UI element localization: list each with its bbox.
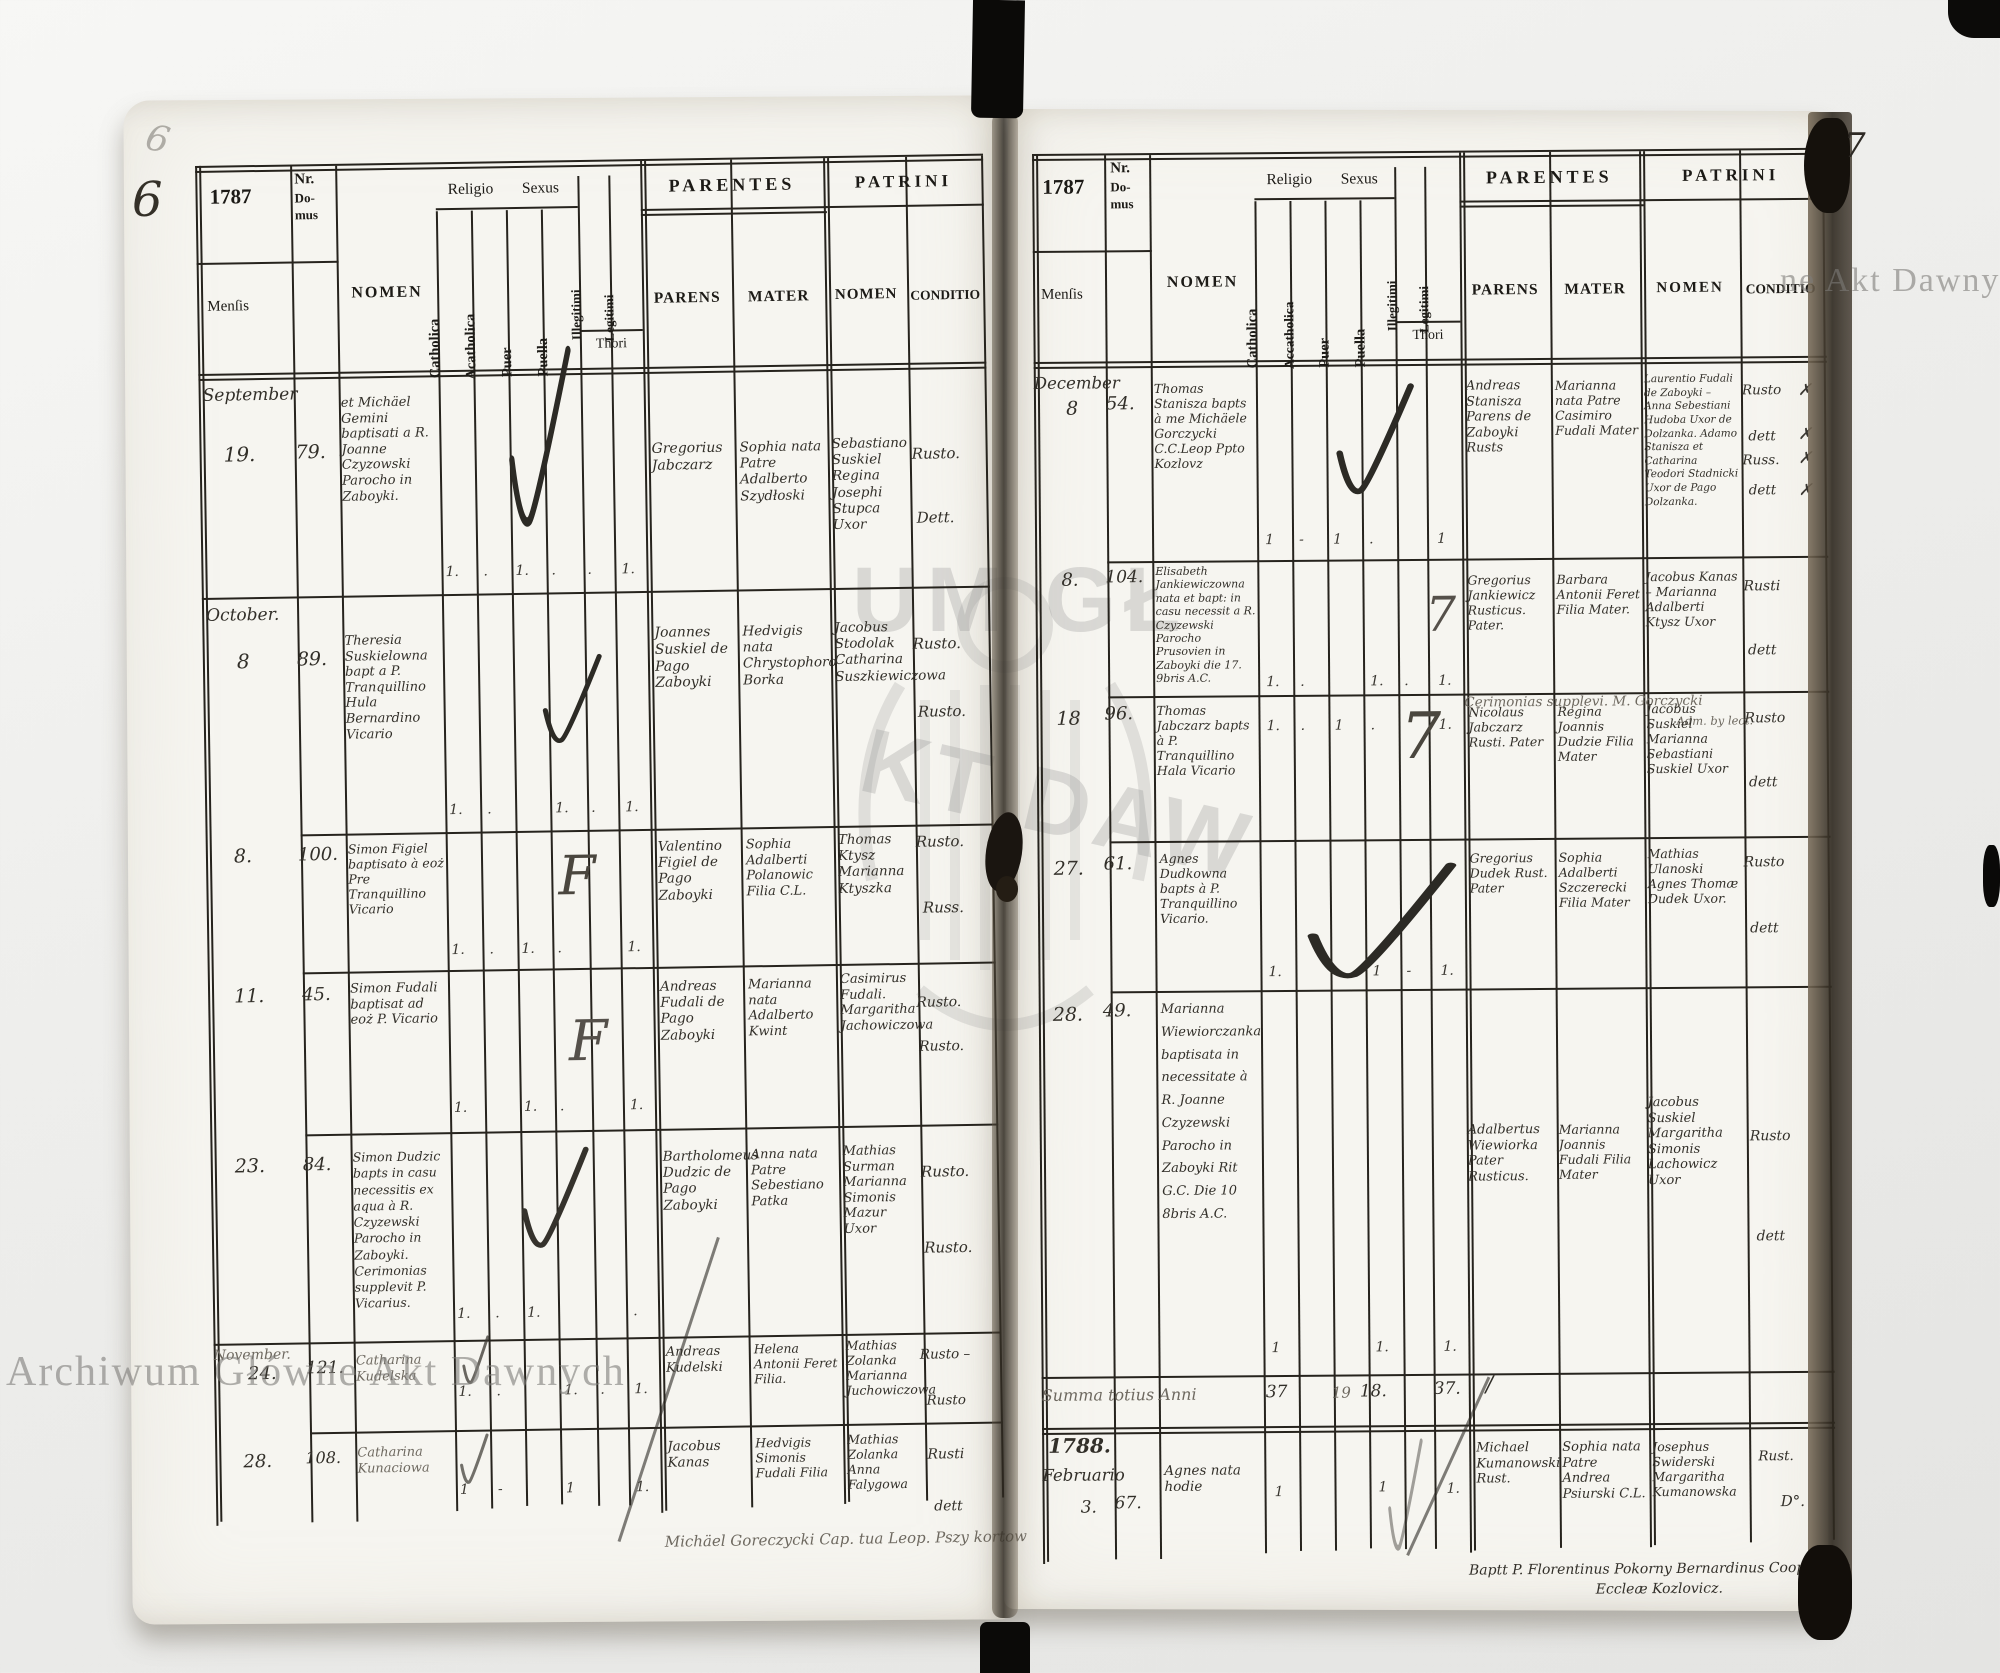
- entry-number: 79.: [295, 441, 326, 464]
- decorative-element: .: [1369, 531, 1374, 547]
- parens-label: PARENS: [1460, 282, 1550, 299]
- puer-label: Puer: [1317, 338, 1334, 368]
- entry-patrini: Sebastiano Suskiel Regina Josephi Stupca…: [831, 435, 909, 533]
- decorative-element: 1: [566, 1480, 575, 1496]
- entry-nomen: Simon Figiel baptisato à eoż Pre Tranqui…: [348, 840, 446, 917]
- entry-nomen: Simon Dudzic bapts in casu necessitis ex…: [353, 1148, 454, 1312]
- entry-nomen: Catharina Kunaciowa: [357, 1444, 452, 1477]
- entry-parens: Gregorius Dudek Rust. Pater: [1470, 850, 1554, 896]
- decorative-element: .: [1370, 717, 1375, 733]
- summa-catholica: 37: [1266, 1382, 1288, 1403]
- table-rule: [730, 160, 753, 1508]
- religio-label: Religio: [1252, 172, 1326, 189]
- patrini-nomen-label: NOMEN: [825, 287, 907, 304]
- decorative-element: 1.: [627, 939, 641, 955]
- spine-ink-blob: [996, 876, 1018, 902]
- check-mark: [1291, 857, 1474, 994]
- decorative-element: .: [1300, 674, 1305, 690]
- entry-day: 28.: [243, 1451, 272, 1473]
- decorative-element: 1.: [1266, 674, 1279, 690]
- decorative-element: 1.: [1370, 673, 1383, 689]
- year-label: 1787: [209, 185, 251, 208]
- entry-month: October.: [206, 605, 279, 627]
- entry-mater: Sophia nata Patre Andrea Psiurski C.L.: [1562, 1439, 1648, 1502]
- entry-patrini: Josephus Swiderski Margaritha Kumanowska: [1652, 1438, 1744, 1499]
- patrini-label: PATRINI: [1639, 166, 1822, 185]
- decorative-element: Rusto: [926, 1392, 966, 1409]
- conditio-label: CONDITIO: [905, 288, 985, 303]
- entry-conditio: Rusto: [1742, 382, 1781, 398]
- table-rule: [1639, 198, 1825, 201]
- decorative-element: .: [560, 1098, 565, 1114]
- entry-day: 28.: [1053, 1004, 1083, 1027]
- entry-parens: Andreas Fudali de Pago Zaboyki: [660, 977, 745, 1043]
- parens-label: PARENS: [642, 290, 732, 308]
- decorative-element: Do-: [1110, 180, 1130, 194]
- decorative-element: dett: [1749, 774, 1778, 791]
- right-register-table: 1787 Nr. Do- mus Menſis NOMEN Religio Se…: [1032, 142, 1838, 1593]
- stroke-path: [544, 656, 600, 741]
- decorative-element: 1.: [527, 1305, 541, 1321]
- entry-patrini: Mathias Ulanoski Agnes Thomæ Dudek Uxor.: [1648, 845, 1743, 906]
- thori-label: Thori: [580, 337, 643, 353]
- entry-patrini: Mathias Zolanka Marianna Juchowiczowa: [846, 1337, 923, 1398]
- decorative-element: 1.: [1375, 1339, 1388, 1355]
- entry-mater: Anna nata Patre Sebestiano Patka: [751, 1146, 838, 1210]
- decorative-element: 1.: [555, 800, 569, 816]
- decorative-element: 1: [1437, 531, 1446, 547]
- sexus-label: Sexus: [1320, 171, 1398, 188]
- decorative-element: -: [498, 1481, 503, 1497]
- entry-month: December: [1034, 373, 1120, 393]
- table-rule: [1033, 250, 1152, 253]
- entry-conditio: Rusto.: [921, 1162, 969, 1181]
- table-rule: [305, 1124, 998, 1137]
- entry-number: 67.: [1115, 1493, 1142, 1514]
- entry-day: 8.: [1061, 570, 1078, 592]
- decorative-element: 1.: [1443, 1339, 1456, 1355]
- entry-day: 23.: [235, 1155, 266, 1178]
- patrini-label: PATRINI: [823, 172, 983, 192]
- decorative-element: dett: [1749, 482, 1777, 498]
- table-rule: [471, 211, 493, 1509]
- entry-mater: Hedvigis Simonis Fudali Filia: [755, 1434, 842, 1480]
- entry-number: 61.: [1104, 853, 1133, 875]
- stroke-path: [510, 350, 570, 522]
- entry-conditio: Rusto: [1744, 710, 1785, 727]
- thori-mark: 7: [1425, 587, 1456, 645]
- entry-month: September: [203, 384, 298, 406]
- entry-day: 3.: [1081, 1498, 1097, 1519]
- puella-label: Puella: [1352, 329, 1369, 368]
- entry-day: 11.: [234, 985, 265, 1008]
- entry-conditio: Rusto: [1744, 854, 1785, 871]
- mark-catholica: 1.: [445, 564, 459, 580]
- table-rule: [640, 161, 663, 1513]
- entry-patrini: Jacobus Stodolak Catharina Suszkiewiczow…: [834, 619, 911, 685]
- entry-mater: Sophia Adalberti Szczerecki Filia Mater: [1559, 849, 1643, 910]
- thori-F-mark: F: [558, 844, 596, 909]
- decorative-element: 1.: [625, 799, 639, 815]
- decorative-element: 1: [1271, 1340, 1280, 1356]
- entry-parens: Gregorius Jankiewicz Rusticus. Pater.: [1467, 572, 1551, 633]
- entry-conditio: Rusto: [1750, 1128, 1791, 1145]
- nomen-label: NOMEN: [337, 284, 437, 302]
- entry-patrini: Laurentio Fudali de Zaboyki – Anna Sebes…: [1644, 372, 1740, 509]
- table-rule: [644, 161, 667, 1511]
- decorative-element: dett: [934, 1498, 963, 1515]
- decorative-element: .: [587, 562, 592, 578]
- entry-conditio: Rusti: [1743, 578, 1780, 595]
- entry-day: 8: [1066, 398, 1078, 421]
- legitimi-label: Legitimi: [1416, 286, 1432, 333]
- summa-legitimi: 37.: [1434, 1379, 1461, 1400]
- decorative-element: 1.: [634, 1381, 648, 1397]
- entry-conditio: Rusto.: [912, 444, 960, 463]
- decorative-element: 1.: [630, 1097, 644, 1113]
- entry-nomen: Theresia Suskielowna bapt a P. Tranquill…: [344, 632, 443, 743]
- entry-parens: Jacobus Kanas: [667, 1437, 751, 1471]
- summa-puer: 19: [1332, 1384, 1351, 1402]
- decorative-element: 1.: [621, 561, 635, 577]
- entry-patrini: Mathias Zolanka Anna Falygowa: [847, 1431, 924, 1492]
- stroke-path: [1339, 386, 1411, 491]
- entry-patrini: Jacobus Suskiel Margaritha Simonis Lacho…: [1647, 1094, 1744, 1188]
- illegitimi-label: Illegitimi: [1384, 281, 1400, 332]
- acatholica-label: Accatholica: [1281, 301, 1298, 369]
- decorative-element: .: [489, 941, 494, 957]
- decorative-element: 1.: [521, 941, 535, 957]
- entry-number: 100.: [298, 844, 338, 866]
- year-1788: 1788.: [1048, 1433, 1111, 1457]
- entry-number: 54.: [1106, 393, 1135, 415]
- mater-label: MATER: [732, 288, 825, 306]
- nr-domus-label: Nr.: [294, 172, 314, 188]
- thori-label: Thori: [1395, 329, 1460, 344]
- decorative-element: Rusto.: [919, 1038, 964, 1056]
- thori-mark: 7: [1400, 699, 1441, 776]
- entry-patrini: Mathias Surman Marianna Simonis Mazur Ux…: [843, 1143, 920, 1238]
- entry-parens: Bartholomeus Dudzic de Pago Zaboyki: [663, 1147, 748, 1213]
- entry-nomen: Thomas Stanisza bapts à me Michäele Gorc…: [1154, 380, 1255, 471]
- entry-mater: Marianna Joannis Fudali Filia Mater: [1559, 1121, 1643, 1182]
- decorative-element: Do-: [295, 191, 315, 205]
- decorative-element: dett: [1757, 1228, 1786, 1245]
- check-mark: [457, 1432, 492, 1491]
- decorative-element: .: [557, 940, 562, 956]
- decorative-element: mus: [1110, 197, 1133, 211]
- archive-watermark-right: ne Akt Dawnych: [1780, 262, 2000, 300]
- entry-number: 84.: [303, 1154, 332, 1176]
- spine-tape-bottom: [980, 1622, 1030, 1673]
- parentes-label: PARENTES: [640, 174, 823, 196]
- thori-F-mark: F: [568, 1008, 608, 1076]
- entry-patrini: Thomas Ktysz Marianna Ktyszka: [838, 831, 915, 897]
- check-mark: [513, 1142, 597, 1261]
- decorative-element: .: [633, 1303, 638, 1319]
- decorative-element: Rusto.: [924, 1238, 972, 1257]
- legitimi-label: Legitimi: [601, 294, 618, 341]
- decorative-element: dett: [1748, 428, 1776, 444]
- mensis-label: Menſis: [1041, 288, 1083, 304]
- catholica-label: Catholica: [427, 319, 445, 379]
- decorative-element: 1: [1333, 532, 1342, 548]
- decorative-element: .: [483, 563, 488, 579]
- entry-patrini: Jacobus Kanas – Marianna Adalberti Ktysz…: [1645, 568, 1740, 629]
- entry-mater: Hedvigis nata Chrystophoro Borka: [742, 622, 829, 688]
- entry-number: 104.: [1105, 567, 1143, 588]
- entry-parens: Andreas Stanisza Parens de Zaboyki Rusts: [1466, 378, 1551, 457]
- entry-nomen: Elisabeth Jankiewiczowna nata et bapt: i…: [1155, 564, 1257, 685]
- entry-mater: Regina Joannis Dudzie Filia Mater: [1557, 703, 1641, 764]
- decorative-element: 1.: [524, 1099, 538, 1115]
- decorative-element: Dett.: [917, 508, 955, 527]
- decorative-element: 1.: [515, 563, 529, 579]
- table-rule: [197, 261, 339, 265]
- entry-day: 18: [1056, 708, 1080, 731]
- entry-nomen: Marianna Wiewiorczanka baptisata in nece…: [1161, 998, 1258, 1226]
- table-rule: [641, 206, 827, 211]
- nr-domus-label: Nr.: [1110, 161, 1130, 177]
- illegitimi-label: Illegitimi: [568, 289, 585, 340]
- entry-number: 49.: [1103, 1000, 1132, 1022]
- decorative-element: 1.: [457, 1306, 471, 1322]
- entry-conditio: Rusto –: [920, 1346, 971, 1363]
- entry-nomen: Agnes nata hodie: [1164, 1462, 1259, 1495]
- entry-day: 27.: [1054, 858, 1084, 881]
- archive-watermark-bottom: Archiwum Główne Akt Dawnych: [6, 1348, 626, 1396]
- entry-parens: Andreas Kudelski: [666, 1343, 750, 1376]
- decorative-element: .: [1404, 673, 1409, 689]
- entry-parens: Joannes Suskiel de Pago Zaboyki: [654, 624, 739, 692]
- decorative-element: 1.: [1446, 1481, 1459, 1497]
- decorative-element: 1.: [1268, 964, 1281, 980]
- table-rule: [577, 176, 600, 1506]
- decorative-element: Rusto.: [918, 702, 966, 721]
- decorative-element: 1: [1275, 1484, 1284, 1500]
- entry-conditio: Rusto.: [913, 634, 961, 653]
- decorative-element: .: [591, 800, 596, 816]
- religio-label: Religio: [433, 181, 507, 198]
- entry-mater: Sophia nata Patre Adalberto Szydłoski: [739, 438, 826, 504]
- decorative-element: 1.: [454, 1100, 468, 1116]
- page-edge-dark-band: [1808, 112, 1852, 1612]
- corner-black-mark: [1948, 0, 2000, 38]
- entry-patrini: Jacobus Suskiel Marianna Sebastiani Susk…: [1646, 700, 1742, 776]
- entry-mater: Sophia Adalberti Polanowic Filia C.L.: [746, 836, 833, 900]
- catholica-label: Catholica: [1244, 309, 1261, 369]
- decorative-element: 1.: [449, 802, 463, 818]
- entry-parens: Michael Kumanowski Rust.: [1476, 1440, 1562, 1487]
- mater-label: MATER: [1550, 281, 1640, 298]
- entry-number: 108.: [305, 1448, 341, 1468]
- entry-day: 8.: [234, 845, 252, 868]
- decorative-element: mus: [295, 208, 318, 222]
- decorative-element: dett: [1750, 920, 1779, 937]
- entry-number: 45.: [302, 984, 331, 1006]
- patrini-nomen-label: NOMEN: [1640, 280, 1740, 297]
- entry-number: 96.: [1104, 703, 1133, 725]
- decorative-element: 1: [1334, 718, 1343, 734]
- diagonal-stroke: [618, 1237, 720, 1542]
- check-mark: [536, 650, 610, 755]
- parentes-label: PARENTES: [1459, 167, 1639, 187]
- table-rule: [824, 204, 984, 209]
- table-rule: [905, 157, 928, 1501]
- entry-number: 89.: [297, 648, 328, 671]
- entry-mater: Helena Antonii Feret Filia.: [754, 1340, 841, 1386]
- entry-mater: Marianna nata Adalberto Kwint: [748, 976, 835, 1040]
- stroke-path: [1312, 865, 1451, 976]
- table-rule: [827, 158, 850, 1502]
- entry-nomen: Thomas Jabczarz bapts à P. Tranquillino …: [1156, 702, 1258, 778]
- entry-parens: Valentino Figiel de Pago Zaboyki: [658, 837, 743, 903]
- decorative-element: .: [1300, 718, 1305, 734]
- acatholica-label: Acatholica: [462, 314, 480, 380]
- entry-conditio: Rusti: [927, 1446, 964, 1463]
- stroke-path: [461, 1435, 488, 1482]
- decorative-element: 1: [1265, 532, 1274, 548]
- sexus-label: Sexus: [501, 180, 579, 197]
- summa-puella: 18.: [1360, 1381, 1387, 1402]
- entry-parens: Gregorius Jabczarz: [651, 440, 736, 475]
- entry-parens: Adalbertus Wiewiorka Pater Rusticus.: [1468, 1122, 1554, 1185]
- entry-day: 19.: [223, 442, 255, 466]
- table-rule: [608, 175, 631, 1505]
- decorative-element: Russ.: [923, 898, 964, 917]
- decorative-element: Russ.: [1742, 452, 1779, 468]
- entry-conditio: Rusto.: [916, 832, 964, 851]
- entry-mater: Marianna nata Patre Casimiro Fudali Mate…: [1555, 377, 1639, 438]
- decorative-element: 1.: [1266, 718, 1279, 734]
- entry-parens: Nicolaus Jabczarz Rusti. Pater: [1468, 704, 1552, 750]
- entry-conditio: Rust.: [1758, 1448, 1794, 1464]
- stroke-path: [523, 1149, 587, 1245]
- entry-month: Februario: [1042, 1465, 1124, 1485]
- decorative-element: D°.: [1781, 1492, 1805, 1510]
- nomen-label: NOMEN: [1150, 274, 1255, 292]
- decorative-element: .: [551, 562, 556, 578]
- folio-number-left: 6: [132, 172, 163, 230]
- entry-day: 8: [237, 649, 250, 673]
- folio-number-right: 7: [1844, 126, 1866, 167]
- entry-patrini: Casimirus Fudali. Margaritha Jachowiczow…: [840, 971, 917, 1035]
- decorative-element: 1.: [636, 1479, 650, 1495]
- check-mark: [1384, 1433, 1427, 1565]
- entry-mater: Barbara Antonii Feret Filia Mater.: [1556, 571, 1640, 617]
- entry-conditio: Rusto.: [916, 994, 961, 1012]
- spine-tape-top: [971, 0, 1025, 118]
- check-mark: [1328, 378, 1423, 509]
- edge-black-mark: [1983, 845, 2000, 907]
- check-mark: [501, 337, 580, 550]
- mensis-label: Menſis: [207, 299, 249, 315]
- entry-nomen: Agnes Dudkowna bapts à P. Tranquillino V…: [1160, 850, 1261, 926]
- summa-label: Summa totius Anni: [1042, 1384, 1252, 1405]
- edge-blob-bottom: [1798, 1545, 1852, 1640]
- decorative-element: .: [487, 801, 492, 817]
- decorative-element: .: [495, 1305, 500, 1321]
- decorative-element: -: [1299, 532, 1304, 548]
- entry-nomen: et Michäel Gemini baptisati a R. Joanne …: [341, 394, 440, 505]
- table-rule: [202, 586, 990, 600]
- entry-nomen: Simon Fudali baptisat ad eoż P. Vicario: [350, 980, 448, 1028]
- decorative-element: dett: [1748, 642, 1777, 659]
- decorative-element: 1.: [1438, 673, 1451, 689]
- decorative-element: 1.: [451, 942, 465, 958]
- year-label: 1787: [1042, 176, 1084, 198]
- table-rule: [641, 211, 827, 216]
